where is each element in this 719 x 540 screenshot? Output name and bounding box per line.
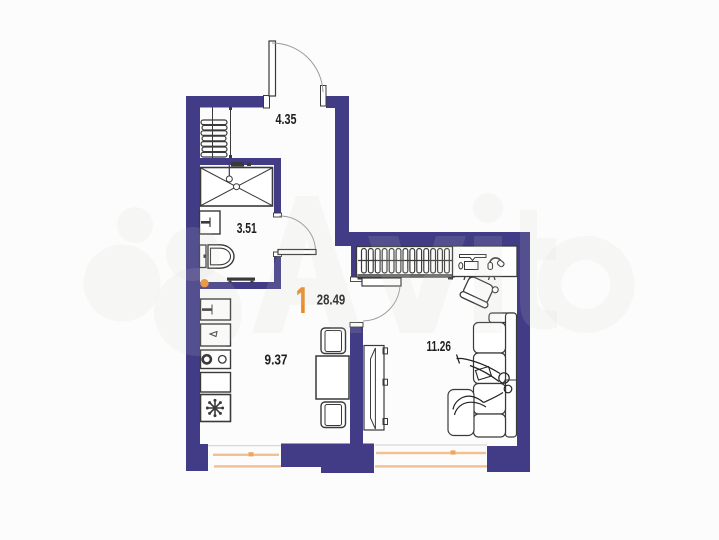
svg-text:9.37: 9.37 <box>265 353 288 369</box>
svg-text:3.51: 3.51 <box>237 221 257 237</box>
svg-text:4.35: 4.35 <box>276 112 297 128</box>
svg-text:11.26: 11.26 <box>426 339 451 355</box>
